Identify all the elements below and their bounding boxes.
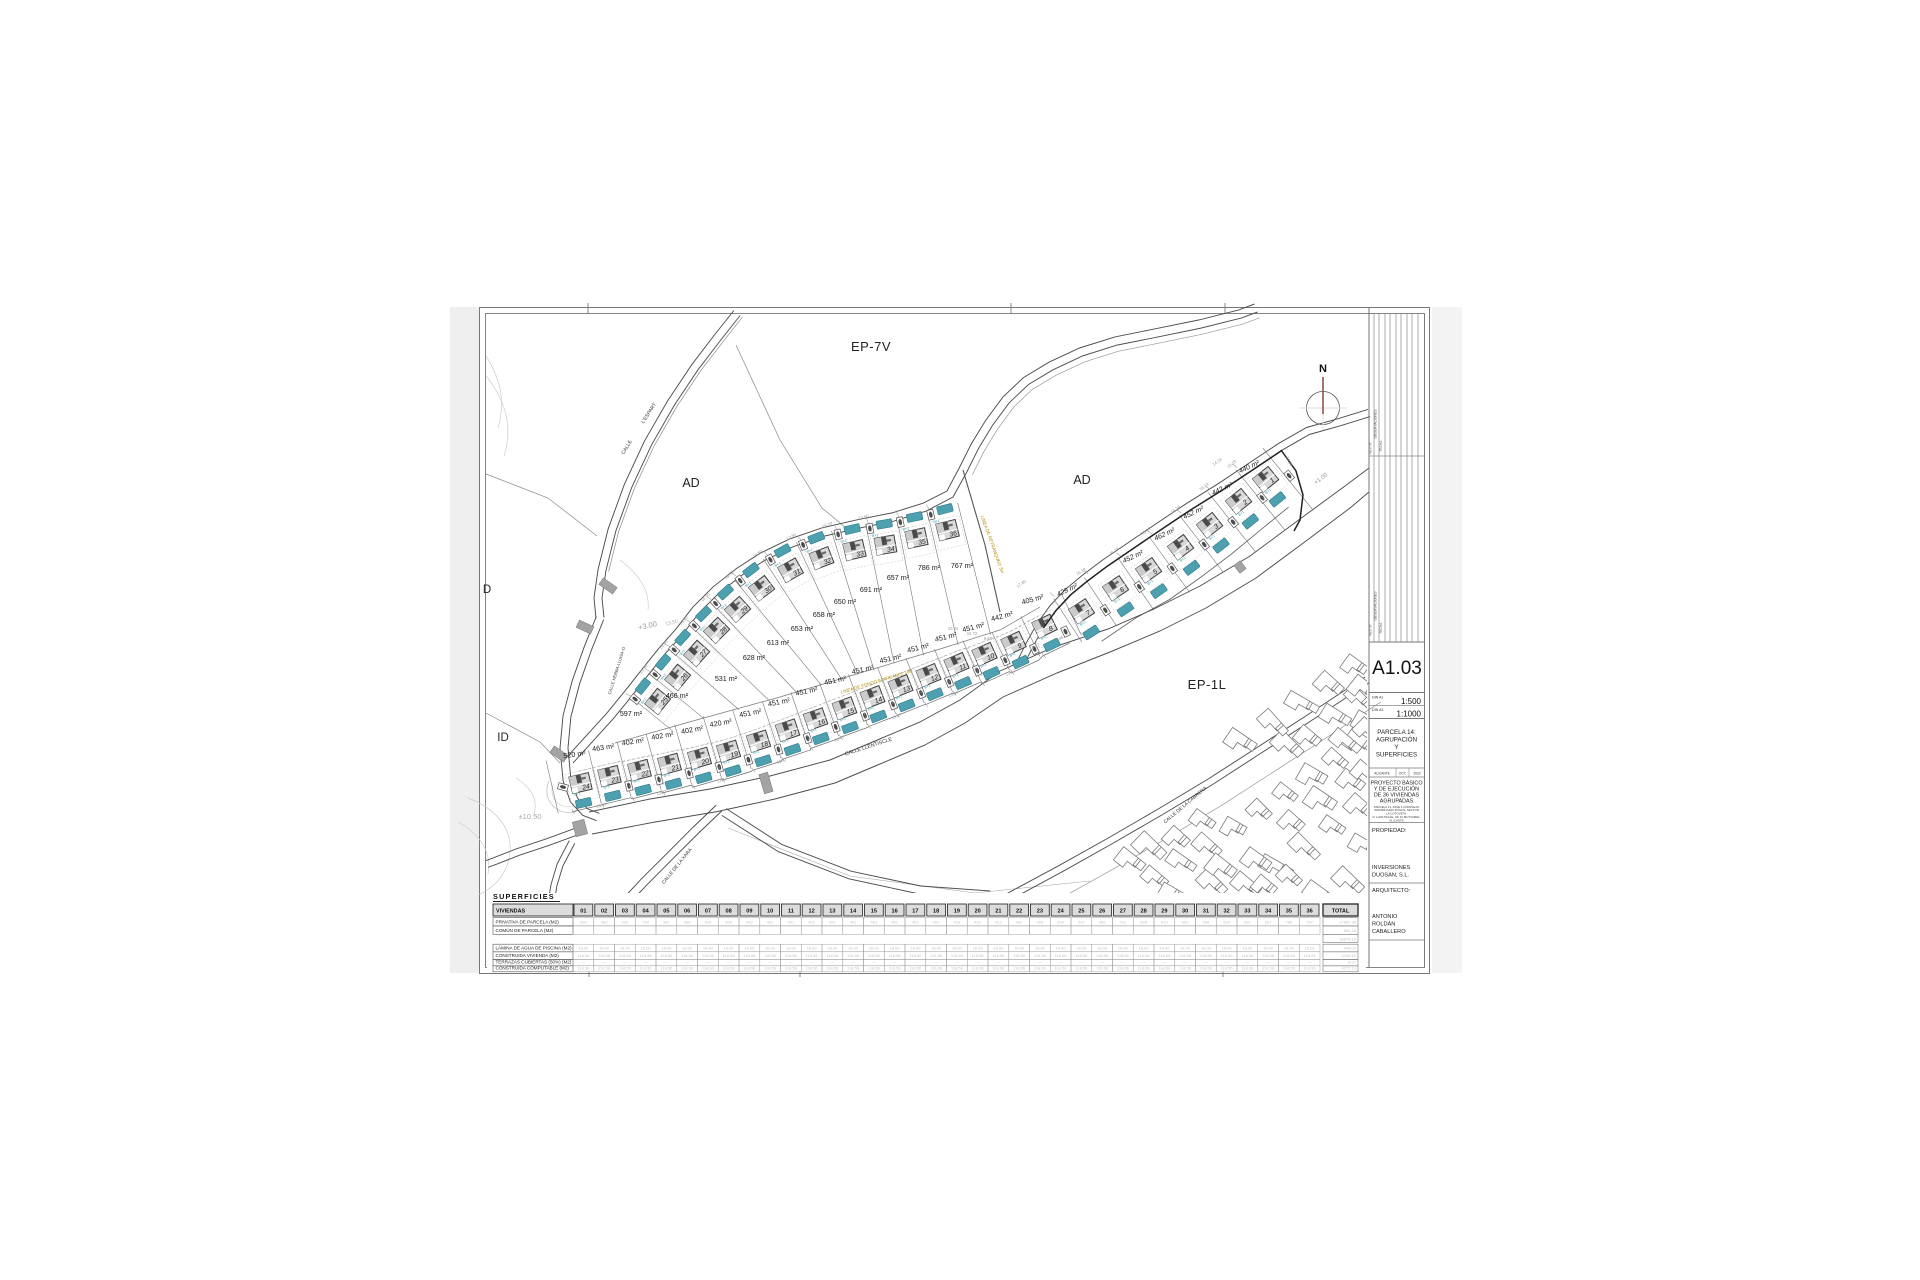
svg-text:118.56: 118.56 — [577, 966, 590, 971]
svg-text:118.56: 118.56 — [930, 966, 943, 971]
svg-text:451: 451 — [767, 920, 774, 925]
svg-text:657 m²: 657 m² — [887, 573, 910, 582]
svg-text:—: — — [1059, 960, 1063, 965]
svg-text:REV. Nº: REV. Nº — [1369, 441, 1373, 453]
svg-text:—: — — [581, 960, 585, 965]
svg-text:118.56: 118.56 — [889, 966, 902, 971]
svg-text:118.56: 118.56 — [1179, 966, 1192, 971]
svg-text:8.97: 8.97 — [1348, 960, 1357, 965]
svg-text:18.00: 18.00 — [910, 946, 921, 951]
svg-text:118.56: 118.56 — [1013, 966, 1026, 971]
svg-text:—: — — [851, 960, 855, 965]
svg-text:12: 12 — [808, 909, 814, 915]
svg-text:653: 653 — [1182, 920, 1189, 925]
svg-text:03: 03 — [622, 909, 628, 915]
svg-text:118.56: 118.56 — [1055, 966, 1068, 971]
svg-text:—: — — [893, 960, 897, 965]
svg-text:AD: AD — [682, 476, 699, 490]
svg-text:—: — — [1142, 960, 1146, 965]
svg-text:613 m²: 613 m² — [767, 638, 790, 647]
svg-text:ALICANTE: ALICANTE — [1389, 818, 1403, 822]
svg-text:15.72: 15.72 — [967, 631, 978, 636]
svg-text:DIN A1: DIN A1 — [1372, 696, 1383, 700]
svg-text:—: — — [1183, 960, 1187, 965]
svg-text:25: 25 — [1078, 909, 1084, 915]
svg-text:24: 24 — [1057, 909, 1064, 915]
svg-text:—: — — [872, 960, 876, 965]
svg-text:118.56: 118.56 — [785, 966, 798, 971]
svg-text:118.56: 118.56 — [577, 953, 590, 958]
svg-text:FECHA: FECHA — [1379, 622, 1383, 634]
svg-text:06: 06 — [684, 909, 690, 915]
svg-text:520: 520 — [1057, 920, 1064, 925]
svg-text:118.56: 118.56 — [909, 966, 922, 971]
svg-text:451: 451 — [850, 920, 857, 925]
svg-text:118.56: 118.56 — [1117, 966, 1130, 971]
svg-text:118.56: 118.56 — [640, 953, 653, 958]
svg-text:691: 691 — [1244, 920, 1251, 925]
svg-text:118.56: 118.56 — [1034, 966, 1047, 971]
svg-text:658: 658 — [1203, 920, 1210, 925]
svg-text:18.00: 18.00 — [807, 946, 818, 951]
svg-text:21: 21 — [995, 909, 1001, 915]
svg-text:SUPERFICIES: SUPERFICIES — [493, 892, 555, 901]
svg-text:118.56: 118.56 — [764, 953, 777, 958]
svg-text:118.56: 118.56 — [1262, 953, 1275, 958]
svg-text:118.56: 118.56 — [1158, 953, 1171, 958]
svg-text:18.00: 18.00 — [1263, 946, 1274, 951]
svg-text:08: 08 — [725, 909, 731, 915]
svg-text:4268.16: 4268.16 — [1342, 953, 1357, 958]
svg-text:—: — — [976, 960, 980, 965]
svg-text:34: 34 — [1265, 909, 1272, 915]
svg-text:18.00: 18.00 — [641, 946, 652, 951]
svg-text:17987.36: 17987.36 — [1339, 920, 1356, 925]
svg-text:118.56: 118.56 — [598, 966, 611, 971]
svg-text:OBSERVACIONES: OBSERVACIONES — [1374, 591, 1378, 621]
svg-text:118.56: 118.56 — [702, 966, 715, 971]
svg-text:429: 429 — [705, 920, 712, 925]
svg-text:VIVIENDAS: VIVIENDAS — [496, 909, 525, 915]
svg-text:10: 10 — [767, 909, 773, 915]
svg-text:—: — — [810, 960, 814, 965]
svg-text:—: — — [727, 960, 731, 965]
svg-text:18.00: 18.00 — [973, 946, 984, 951]
svg-text:118.56: 118.56 — [1283, 966, 1296, 971]
svg-text:AGRUPACIÓN: AGRUPACIÓN — [1376, 737, 1417, 744]
svg-text:657: 657 — [1265, 920, 1272, 925]
svg-text:—: — — [664, 960, 668, 965]
svg-text:—: — — [1308, 960, 1312, 965]
svg-text:09: 09 — [746, 909, 752, 915]
svg-text:DUOSAN, S.L.: DUOSAN, S.L. — [1372, 873, 1409, 879]
svg-text:118.56: 118.56 — [992, 953, 1005, 958]
svg-text:—: — — [685, 960, 689, 965]
svg-text:—: — — [1287, 960, 1291, 965]
svg-text:118.56: 118.56 — [992, 966, 1005, 971]
svg-text:118.56: 118.56 — [889, 953, 902, 958]
svg-text:390: 390 — [580, 920, 587, 925]
svg-text:402: 402 — [1016, 920, 1023, 925]
svg-text:AGRUPADAS: AGRUPADAS — [1380, 799, 1414, 805]
svg-text:—: — — [996, 960, 1000, 965]
svg-text:23: 23 — [1037, 909, 1043, 915]
svg-text:PARCELA 14:: PARCELA 14: — [1377, 729, 1416, 736]
svg-text:30: 30 — [1182, 909, 1188, 915]
svg-text:SUPERFICIES: SUPERFICIES — [1376, 752, 1417, 759]
svg-text:—: — — [1162, 960, 1166, 965]
svg-text:18675.18: 18675.18 — [1339, 937, 1356, 942]
svg-text:118.56: 118.56 — [723, 966, 736, 971]
svg-text:CABALLERO: CABALLERO — [1372, 929, 1406, 935]
svg-text:118.56: 118.56 — [826, 966, 839, 971]
svg-text:118.56: 118.56 — [951, 966, 964, 971]
svg-text:±10.50: ±10.50 — [519, 812, 542, 821]
svg-text:D: D — [483, 584, 491, 596]
svg-text:Y: Y — [1394, 744, 1398, 751]
svg-text:466 m²: 466 m² — [666, 691, 689, 700]
svg-text:18.00: 18.00 — [1284, 946, 1295, 951]
svg-text:118.56: 118.56 — [1179, 953, 1192, 958]
svg-text:29: 29 — [1161, 909, 1167, 915]
svg-text:28: 28 — [1140, 909, 1146, 915]
svg-text:REV. Nº: REV. Nº — [1369, 623, 1373, 635]
svg-text:118.56: 118.56 — [681, 966, 694, 971]
svg-text:N: N — [1319, 363, 1327, 375]
svg-text:26: 26 — [1099, 909, 1105, 915]
svg-text:597: 597 — [1078, 920, 1085, 925]
svg-text:750: 750 — [642, 920, 649, 925]
svg-text:ROLDÁN: ROLDÁN — [1372, 921, 1395, 928]
svg-text:118.56: 118.56 — [826, 953, 839, 958]
svg-text:118.56: 118.56 — [723, 953, 736, 958]
svg-text:387: 387 — [663, 920, 670, 925]
svg-text:451: 451 — [933, 920, 940, 925]
svg-text:650 m²: 650 m² — [834, 597, 857, 606]
svg-text:1:1000: 1:1000 — [1397, 710, 1422, 719]
svg-text:118.56: 118.56 — [660, 966, 673, 971]
svg-text:405: 405 — [725, 920, 732, 925]
svg-text:—: — — [706, 960, 710, 965]
svg-text:653 m²: 653 m² — [791, 624, 814, 633]
svg-text:18.00: 18.00 — [931, 946, 942, 951]
svg-text:18.00: 18.00 — [620, 946, 631, 951]
svg-text:18.00: 18.00 — [1118, 946, 1129, 951]
svg-text:18.00: 18.00 — [890, 946, 901, 951]
svg-text:—: — — [747, 960, 751, 965]
svg-text:DIN A3: DIN A3 — [1372, 708, 1383, 712]
svg-text:118.56: 118.56 — [909, 953, 922, 958]
svg-text:18.00: 18.00 — [1305, 946, 1316, 951]
svg-text:18.00: 18.00 — [1056, 946, 1067, 951]
svg-text:451: 451 — [808, 920, 815, 925]
svg-text:118.56: 118.56 — [847, 953, 860, 958]
svg-text:118.56: 118.56 — [1221, 953, 1234, 958]
svg-text:ARQUITECTO:: ARQUITECTO: — [1372, 888, 1411, 894]
svg-text:16: 16 — [891, 909, 897, 915]
svg-text:CONSTRUIDA VIVIENDA (M2): CONSTRUIDA VIVIENDA (M2) — [496, 953, 560, 958]
svg-text:18.00: 18.00 — [1201, 946, 1212, 951]
svg-text:TOTAL: TOTAL — [1332, 909, 1350, 915]
svg-text:786: 786 — [1286, 920, 1293, 925]
svg-text:118.56: 118.56 — [681, 953, 694, 958]
svg-text:—: — — [1038, 960, 1042, 965]
svg-text:18.00: 18.00 — [993, 946, 1004, 951]
svg-text:118.56: 118.56 — [1200, 953, 1213, 958]
svg-text:118.56: 118.56 — [1013, 953, 1026, 958]
svg-text:FECHA: FECHA — [1379, 440, 1383, 452]
svg-text:18.00: 18.00 — [682, 946, 693, 951]
svg-text:118.56: 118.56 — [806, 953, 819, 958]
svg-text:35: 35 — [1286, 909, 1292, 915]
svg-text:118.56: 118.56 — [1075, 953, 1088, 958]
svg-text:118.56: 118.56 — [1117, 953, 1130, 958]
svg-text:118.56: 118.56 — [1096, 966, 1109, 971]
svg-text:425: 425 — [954, 920, 961, 925]
svg-text:650: 650 — [1223, 920, 1230, 925]
svg-text:118.56: 118.56 — [619, 953, 632, 958]
svg-text:118.56: 118.56 — [598, 953, 611, 958]
svg-text:118.56: 118.56 — [868, 953, 881, 958]
svg-text:18.00: 18.00 — [1076, 946, 1087, 951]
svg-text:18.00: 18.00 — [1139, 946, 1150, 951]
svg-text:ID: ID — [497, 732, 509, 744]
svg-text:118.56: 118.56 — [806, 966, 819, 971]
svg-text:02: 02 — [601, 909, 607, 915]
svg-text:18.00: 18.00 — [848, 946, 859, 951]
svg-text:118.56: 118.56 — [972, 966, 985, 971]
svg-text:466: 466 — [1099, 920, 1106, 925]
svg-text:—: — — [1225, 960, 1229, 965]
svg-text:04: 04 — [642, 909, 649, 915]
svg-text:18.00: 18.00 — [661, 946, 672, 951]
svg-text:07: 07 — [705, 909, 711, 915]
svg-text:628: 628 — [1140, 920, 1147, 925]
svg-text:118.56: 118.56 — [930, 953, 943, 958]
svg-text:18.00: 18.00 — [952, 946, 963, 951]
svg-text:—: — — [955, 960, 959, 965]
svg-text:—: — — [1266, 960, 1270, 965]
svg-text:18.00: 18.00 — [1014, 946, 1025, 951]
svg-text:18.00: 18.00 — [786, 946, 797, 951]
svg-text:19: 19 — [954, 909, 960, 915]
svg-text:402: 402 — [974, 920, 981, 925]
svg-text:18.00: 18.00 — [1242, 946, 1253, 951]
svg-text:118.56: 118.56 — [1034, 953, 1047, 958]
svg-text:118.56: 118.56 — [1138, 966, 1151, 971]
svg-text:33: 33 — [1244, 909, 1250, 915]
svg-text:451: 451 — [912, 920, 919, 925]
svg-text:OCT.: OCT. — [1399, 771, 1406, 775]
svg-text:118.56: 118.56 — [619, 966, 632, 971]
svg-text:118.56: 118.56 — [951, 953, 964, 958]
svg-text:31: 31 — [1203, 909, 1209, 915]
svg-text:13: 13 — [829, 909, 835, 915]
svg-text:EP-7V: EP-7V — [851, 339, 891, 354]
svg-text:118.56: 118.56 — [660, 953, 673, 958]
svg-text:18.00: 18.00 — [1180, 946, 1191, 951]
svg-text:OBSERVACIONES: OBSERVACIONES — [1374, 409, 1378, 439]
svg-text:18.00: 18.00 — [599, 946, 610, 951]
svg-text:18: 18 — [933, 909, 939, 915]
svg-text:11: 11 — [788, 909, 794, 915]
svg-text:18.00: 18.00 — [703, 946, 714, 951]
svg-text:118.56: 118.56 — [1304, 966, 1317, 971]
svg-text:—: — — [1121, 960, 1125, 965]
svg-text:18.00: 18.00 — [1159, 946, 1170, 951]
svg-text:COMÚN DE PARCELA (M2): COMÚN DE PARCELA (M2) — [496, 927, 554, 933]
svg-text:17: 17 — [912, 909, 918, 915]
svg-text:118.56: 118.56 — [1075, 966, 1088, 971]
svg-text:118.56: 118.56 — [702, 953, 715, 958]
svg-text:392: 392 — [622, 920, 629, 925]
svg-text:22: 22 — [1016, 909, 1022, 915]
svg-text:118.56: 118.56 — [1096, 953, 1109, 958]
svg-text:34: 34 — [887, 546, 896, 554]
svg-text:118.56: 118.56 — [785, 953, 798, 958]
svg-text:383: 383 — [601, 920, 608, 925]
svg-text:4277.13: 4277.13 — [1342, 966, 1357, 971]
svg-text:ANTONIO: ANTONIO — [1372, 914, 1398, 920]
svg-text:PROYECTO BÁSICO: PROYECTO BÁSICO — [1370, 780, 1422, 787]
svg-text:451: 451 — [871, 920, 878, 925]
svg-text:15: 15 — [871, 909, 877, 915]
svg-text:18.00: 18.00 — [1097, 946, 1108, 951]
svg-text:01: 01 — [580, 909, 586, 915]
svg-text:118.56: 118.56 — [1241, 953, 1254, 958]
svg-text:—: — — [768, 960, 772, 965]
svg-text:118.56: 118.56 — [1200, 966, 1213, 971]
svg-text:691 m²: 691 m² — [860, 585, 883, 594]
svg-text:118.56: 118.56 — [1055, 953, 1068, 958]
svg-text:685.18: 685.18 — [1344, 928, 1357, 933]
svg-text:9.91: 9.91 — [984, 636, 993, 641]
svg-text:451: 451 — [891, 920, 898, 925]
svg-text:388: 388 — [684, 920, 691, 925]
svg-text:451: 451 — [829, 920, 836, 925]
svg-text:597 m²: 597 m² — [620, 709, 643, 718]
svg-text:658 m²: 658 m² — [813, 610, 836, 619]
svg-text:PROPIEDAD:: PROPIEDAD: — [1372, 828, 1407, 834]
svg-text:118.56: 118.56 — [972, 953, 985, 958]
svg-text:463: 463 — [1037, 920, 1044, 925]
svg-text:118.56: 118.56 — [847, 966, 860, 971]
svg-text:36: 36 — [1306, 909, 1312, 915]
svg-text:118.56: 118.56 — [1262, 966, 1275, 971]
svg-text:—: — — [1245, 960, 1249, 965]
svg-text:PRIVATIVA DE PARCELA (M2): PRIVATIVA DE PARCELA (M2) — [496, 920, 560, 925]
svg-text:118.56: 118.56 — [1241, 966, 1254, 971]
svg-text:118.56: 118.56 — [1221, 966, 1234, 971]
svg-text:20.24: 20.24 — [948, 626, 959, 631]
svg-text:18.00: 18.00 — [765, 946, 776, 951]
svg-text:422: 422 — [995, 920, 1002, 925]
svg-text:118.56: 118.56 — [1158, 966, 1171, 971]
svg-text:18.00: 18.00 — [578, 946, 589, 951]
svg-text:—: — — [1079, 960, 1083, 965]
svg-text:2022: 2022 — [1413, 771, 1420, 775]
svg-text:—: — — [602, 960, 606, 965]
svg-text:118.56: 118.56 — [743, 953, 756, 958]
svg-text:ALICANTE: ALICANTE — [1374, 771, 1390, 775]
svg-text:118.56: 118.56 — [1138, 953, 1151, 958]
svg-text:786 m²: 786 m² — [918, 563, 941, 572]
svg-text:18.00: 18.00 — [724, 946, 735, 951]
svg-text:EP-1L: EP-1L — [1188, 677, 1227, 692]
svg-text:118.56: 118.56 — [764, 966, 777, 971]
svg-text:A1.03: A1.03 — [1372, 658, 1422, 679]
svg-text:648.00: 648.00 — [1344, 946, 1357, 951]
svg-text:—: — — [830, 960, 834, 965]
svg-text:20: 20 — [974, 909, 980, 915]
svg-text:TERRAZAS CUBIERTAS (50%) (M: TERRAZAS CUBIERTAS (50%) (M2) — [496, 960, 572, 965]
svg-text:Y DE EJECUCIÓN: Y DE EJECUCIÓN — [1374, 786, 1419, 793]
svg-text:—: — — [1204, 960, 1208, 965]
svg-text:—: — — [913, 960, 917, 965]
svg-text:118.56: 118.56 — [1283, 953, 1296, 958]
svg-text:118.56: 118.56 — [1304, 953, 1317, 958]
svg-text:INVERSIONES: INVERSIONES — [1372, 865, 1411, 871]
svg-text:118.56: 118.56 — [743, 966, 756, 971]
svg-text:—: — — [644, 960, 648, 965]
svg-text:18.00: 18.00 — [744, 946, 755, 951]
svg-text:18.00: 18.00 — [1035, 946, 1046, 951]
svg-text:AD: AD — [1073, 473, 1090, 487]
svg-text:—: — — [1017, 960, 1021, 965]
svg-text:14: 14 — [850, 909, 857, 915]
svg-text:613: 613 — [1161, 920, 1168, 925]
svg-text:LÁMINA DE AGUA DE PISCINA: LÁMINA DE AGUA DE PISCINA (M2) — [496, 945, 573, 951]
svg-text:—: — — [934, 960, 938, 965]
svg-text:—: — — [623, 960, 627, 965]
svg-text:767 m²: 767 m² — [951, 561, 974, 570]
svg-text:18.00: 18.00 — [1222, 946, 1233, 951]
svg-text:27: 27 — [1120, 909, 1126, 915]
svg-text:1:500: 1:500 — [1401, 697, 1422, 706]
svg-text:05: 05 — [663, 909, 669, 915]
svg-text:531 m²: 531 m² — [715, 674, 738, 683]
svg-text:767: 767 — [1306, 920, 1313, 925]
svg-text:531: 531 — [1120, 920, 1127, 925]
svg-text:CONSTRUIDA COMPUTABLE (M2): CONSTRUIDA COMPUTABLE (M2) — [496, 966, 570, 971]
svg-text:118.56: 118.56 — [640, 966, 653, 971]
svg-text:—: — — [1100, 960, 1104, 965]
svg-text:—: — — [789, 960, 793, 965]
svg-text:18.00: 18.00 — [827, 946, 838, 951]
svg-text:628 m²: 628 m² — [743, 653, 766, 662]
svg-text:118.56: 118.56 — [868, 966, 881, 971]
svg-text:442: 442 — [746, 920, 753, 925]
svg-text:18.00: 18.00 — [869, 946, 880, 951]
svg-text:32: 32 — [1223, 909, 1229, 915]
svg-text:451: 451 — [788, 920, 795, 925]
